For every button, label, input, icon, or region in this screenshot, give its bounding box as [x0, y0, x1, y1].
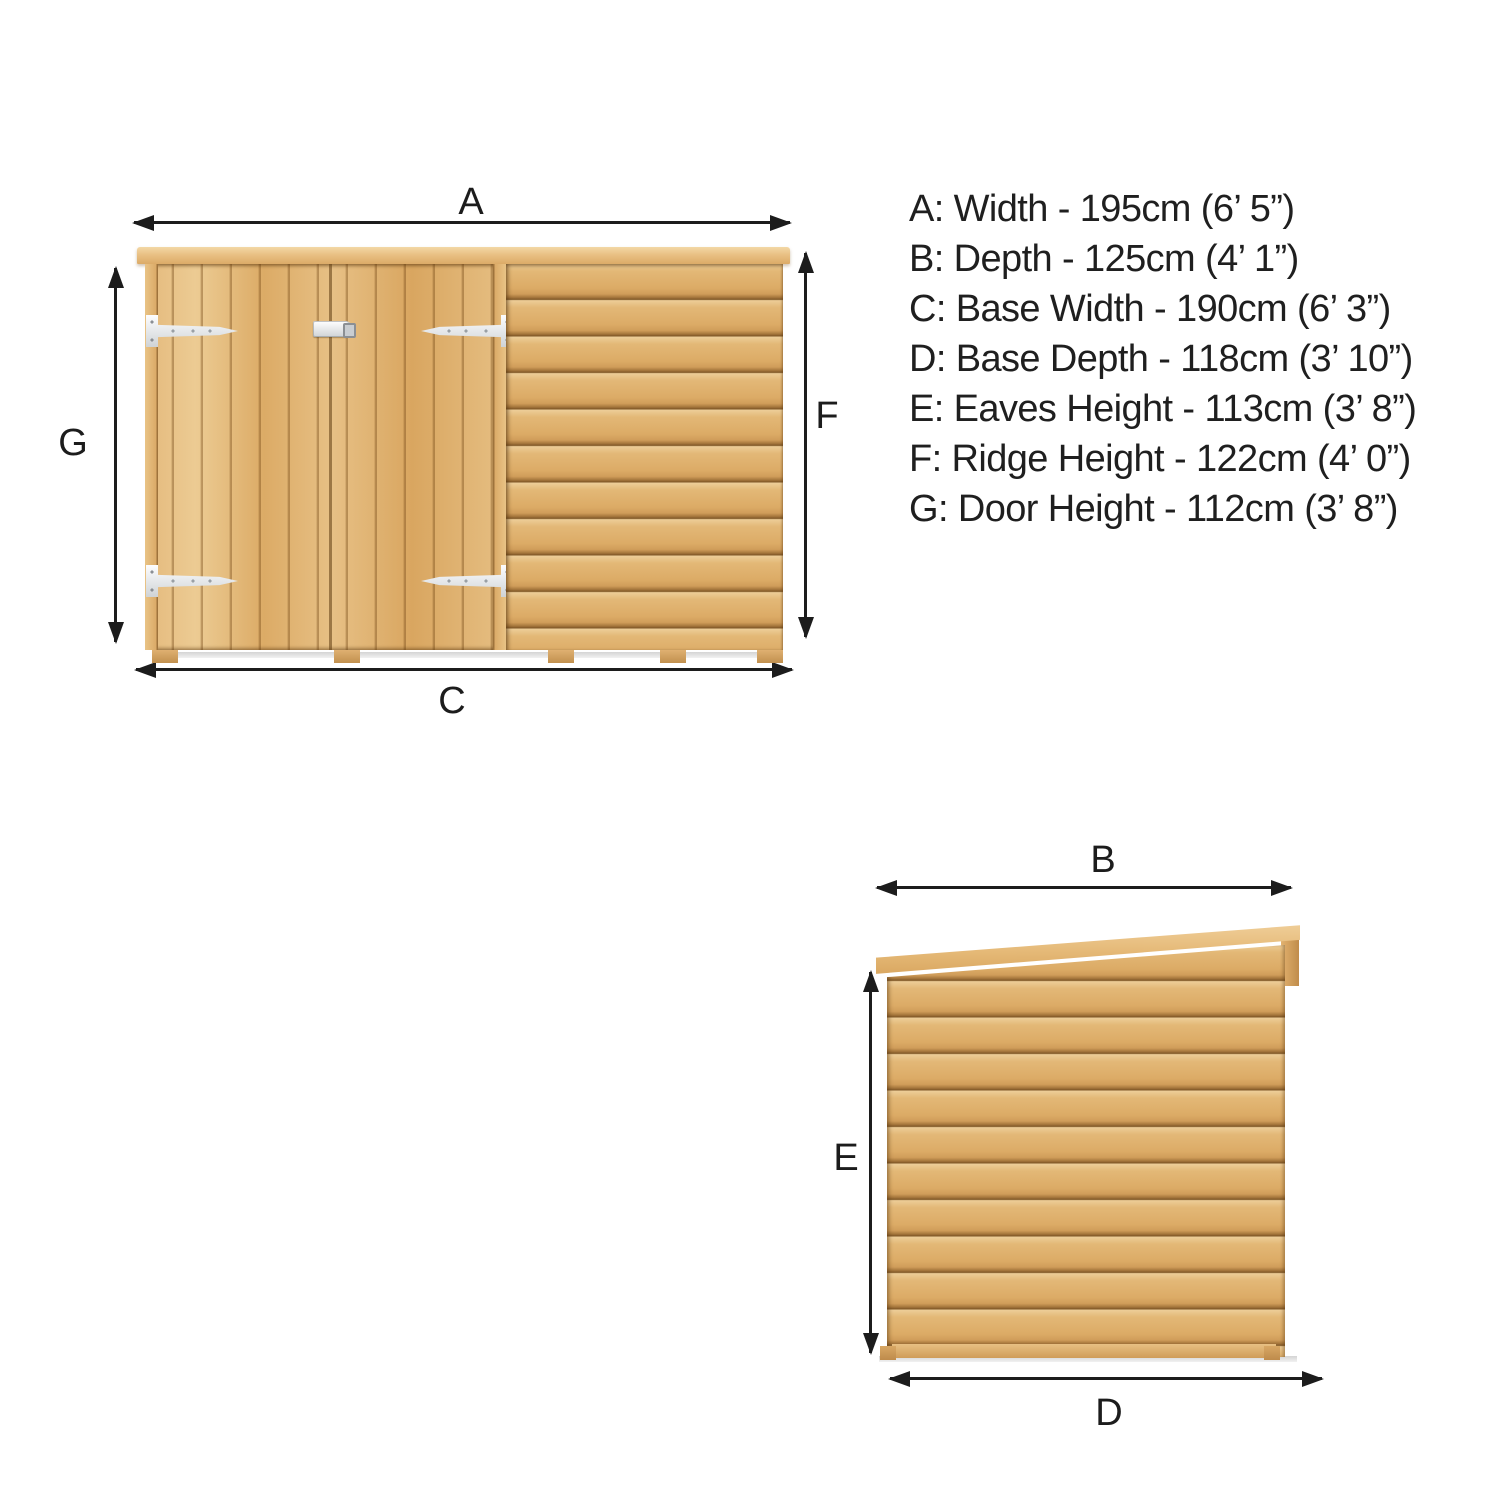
front-foot — [660, 650, 686, 663]
side-cladding-wall — [887, 945, 1285, 1357]
side-eaves-height-arrow — [869, 972, 872, 1353]
side-foot — [1264, 1346, 1280, 1360]
side-base-depth-letter: D — [1095, 1394, 1122, 1432]
front-ridge-height-letter: F — [815, 397, 838, 435]
front-body — [145, 264, 783, 650]
front-foot — [334, 650, 360, 663]
side-foot — [880, 1346, 896, 1360]
dimension-item-e: E: Eaves Height - 113cm (3’ 8”) — [909, 384, 1416, 434]
door-hinge-bottom-left — [146, 565, 238, 597]
front-cladding-panel — [506, 264, 783, 650]
front-door-height-letter: G — [58, 424, 88, 462]
side-eaves-height-letter: E — [833, 1139, 858, 1177]
dimension-item-b: B: Depth - 125cm (4’ 1”) — [909, 234, 1416, 284]
front-ridge-height-arrow — [804, 253, 807, 637]
side-depth-letter: B — [1090, 841, 1115, 879]
front-door-height-arrow — [114, 268, 117, 642]
front-roof-edge — [137, 247, 790, 264]
front-foot — [757, 650, 783, 663]
front-foot — [548, 650, 574, 663]
dimension-item-d: D: Base Depth - 118cm (3’ 10”) — [909, 334, 1416, 384]
door-hasp-latch — [313, 321, 353, 337]
dimension-item-f: F: Ridge Height - 122cm (4’ 0”) — [909, 434, 1416, 484]
shed-dimensions-diagram: A G F C — [0, 0, 1500, 1500]
front-base-width-letter: C — [438, 682, 465, 720]
side-base-depth-arrow — [890, 1377, 1322, 1380]
front-width-arrow — [134, 221, 790, 224]
double-doors — [145, 264, 506, 650]
dimension-item-a: A: Width - 195cm (6’ 5”) — [909, 184, 1416, 234]
front-width-letter: A — [458, 183, 483, 221]
front-base-width-arrow — [136, 668, 792, 671]
dimension-item-g: G: Door Height - 112cm (3’ 8”) — [909, 484, 1416, 534]
side-base-rail — [892, 1344, 1276, 1358]
dimension-key: A: Width - 195cm (6’ 5”) B: Depth - 125c… — [909, 184, 1416, 534]
front-foot — [152, 650, 178, 663]
dimension-item-c: C: Base Width - 190cm (6’ 3”) — [909, 284, 1416, 334]
door-hinge-top-left — [146, 315, 238, 347]
side-depth-arrow — [877, 886, 1291, 889]
